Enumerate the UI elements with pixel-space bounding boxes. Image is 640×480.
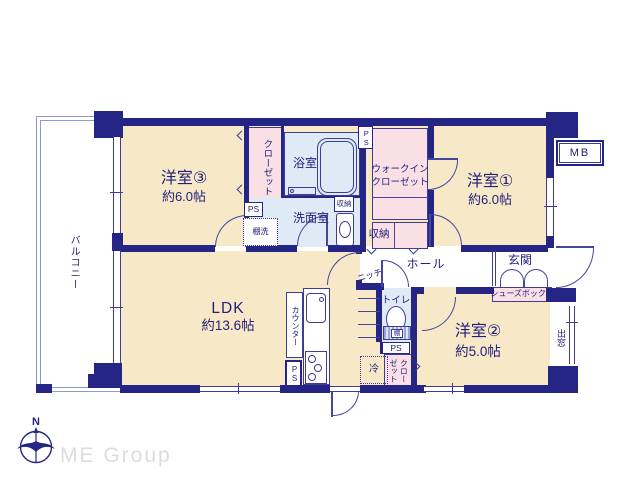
washbasin-bowl	[339, 221, 351, 238]
bay-window-glass	[569, 306, 575, 364]
closet-room2-label: クローゼット	[387, 356, 409, 386]
window-tick	[238, 383, 239, 394]
window	[113, 137, 121, 233]
wall	[411, 287, 424, 294]
shoebox-door-arc	[500, 269, 524, 287]
wic-divider-line	[372, 197, 428, 198]
door-leaf	[331, 391, 333, 417]
balcony-label: バルコニー	[66, 222, 81, 302]
ldk-label: LDK	[190, 300, 266, 318]
wall	[464, 385, 578, 393]
genkan-label: 玄関	[504, 253, 536, 268]
door-leaf	[428, 158, 458, 160]
entrance-step-line	[492, 250, 496, 286]
bath-faucet	[290, 189, 294, 193]
shoebox-door-arc	[524, 269, 548, 287]
window	[200, 386, 280, 392]
compass-icon: N	[13, 412, 59, 468]
door-leaf	[429, 214, 431, 246]
hall-storage-label: 収納	[363, 228, 395, 242]
room1-label: 洋室①	[454, 172, 526, 191]
laundry-shelf-label: 棚洗	[244, 226, 277, 238]
ps-label: PS	[382, 343, 410, 354]
wall	[120, 385, 200, 393]
wall	[36, 384, 52, 393]
storage-label: 収納	[334, 199, 354, 210]
mb-label: MB	[558, 145, 602, 161]
wall	[281, 126, 284, 198]
bathtub-inner	[320, 141, 354, 193]
wall	[120, 118, 548, 126]
ps-label: PS	[359, 128, 372, 148]
brand-logo-text: ME Group	[60, 444, 172, 468]
ps-label: PS	[244, 203, 263, 216]
room2-size: 約5.0帖	[440, 344, 516, 360]
stove-burner	[308, 373, 316, 381]
wall	[411, 287, 417, 387]
window-tick	[452, 383, 453, 394]
room3-label: 洋室③	[148, 169, 220, 188]
hall-label: ホール	[404, 257, 448, 272]
wall	[94, 111, 123, 138]
bay-window-label: 出窓	[554, 321, 568, 355]
door-arc-entrance	[556, 248, 594, 288]
svg-text:N: N	[32, 416, 40, 428]
fridge-label: 冷	[360, 363, 388, 377]
stove-burner	[314, 364, 322, 372]
wall	[428, 126, 434, 160]
toilet-shelf-label: 棚	[391, 329, 403, 338]
door-arc-service	[333, 391, 359, 416]
wic-label-line2: クローゼット	[372, 177, 428, 189]
ldk-size: 約13.6帖	[183, 318, 273, 334]
wic-label-line1: ウォークイン	[372, 164, 428, 176]
wall	[120, 245, 215, 252]
niche-shelf	[358, 298, 380, 340]
kitchen-faucet	[319, 297, 324, 302]
ps-label: PS	[287, 363, 300, 384]
bath-label: 浴室	[288, 156, 322, 171]
room1-size: 約6.0帖	[454, 193, 526, 208]
window-tick	[110, 192, 123, 193]
wall	[546, 138, 554, 178]
window-tick	[110, 307, 123, 308]
shoebox-label: シューズボックス	[493, 289, 551, 300]
door-leaf	[556, 246, 594, 248]
room2-label: 洋室②	[440, 322, 516, 342]
stove-burner	[308, 355, 316, 363]
room3-size: 約6.0帖	[148, 190, 220, 205]
floor-plan: バルコニー	[0, 0, 640, 480]
counter-label: カウンター	[288, 298, 301, 354]
wall	[88, 374, 122, 388]
wall	[546, 112, 578, 138]
window	[424, 386, 464, 392]
washroom-label: 洗面室	[288, 211, 334, 226]
wall	[461, 245, 548, 252]
wall	[246, 245, 297, 252]
toilet-label: トイレ	[382, 295, 410, 308]
window-tick	[544, 206, 557, 207]
window	[546, 178, 554, 236]
closet-room3-label: クローゼット	[258, 134, 274, 200]
wall	[456, 287, 494, 294]
